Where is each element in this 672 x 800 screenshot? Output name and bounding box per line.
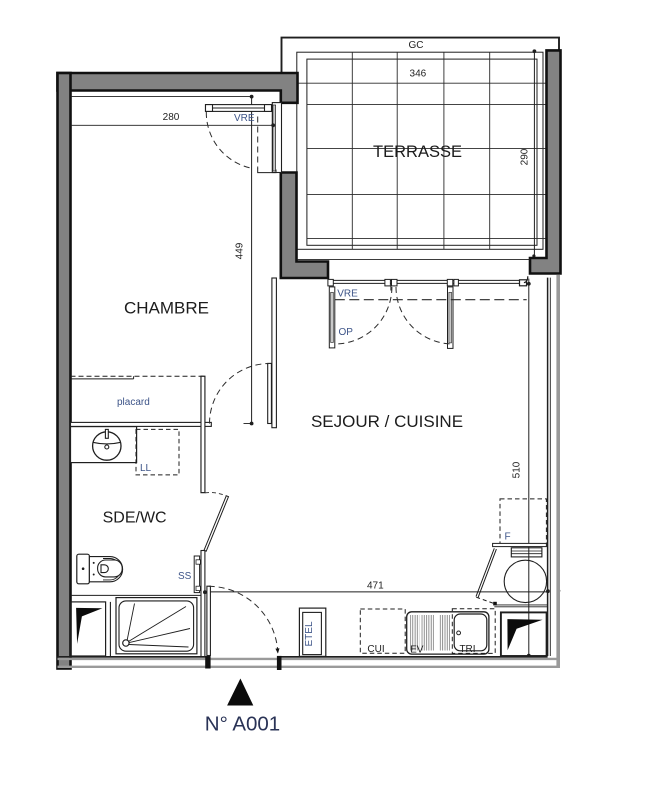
svg-text:VRE: VRE <box>234 113 255 124</box>
svg-text:GC: GC <box>409 40 424 51</box>
svg-text:CHAMBRE: CHAMBRE <box>124 299 209 318</box>
svg-text:510: 510 <box>512 461 523 478</box>
svg-text:CUI: CUI <box>367 644 384 655</box>
svg-text:VRE: VRE <box>337 289 358 300</box>
svg-text:280: 280 <box>163 112 180 123</box>
svg-text:ETEL: ETEL <box>304 621 315 646</box>
svg-text:F: F <box>505 531 511 542</box>
svg-text:placard: placard <box>117 397 150 408</box>
svg-text:N° A001: N° A001 <box>205 713 280 736</box>
svg-text:SEJOUR / CUISINE: SEJOUR / CUISINE <box>311 412 463 431</box>
svg-text:OP: OP <box>338 327 353 338</box>
svg-text:SDE/WC: SDE/WC <box>103 510 167 527</box>
svg-text:471: 471 <box>367 581 384 592</box>
svg-text:290: 290 <box>520 148 531 165</box>
svg-text:346: 346 <box>410 69 427 80</box>
svg-text:449: 449 <box>234 242 245 259</box>
svg-text:TRI: TRI <box>459 644 475 655</box>
svg-text:SS: SS <box>178 571 192 582</box>
svg-text:EV: EV <box>410 644 424 655</box>
svg-text:LL: LL <box>140 463 152 474</box>
svg-text:TERRASSE: TERRASSE <box>373 143 462 161</box>
